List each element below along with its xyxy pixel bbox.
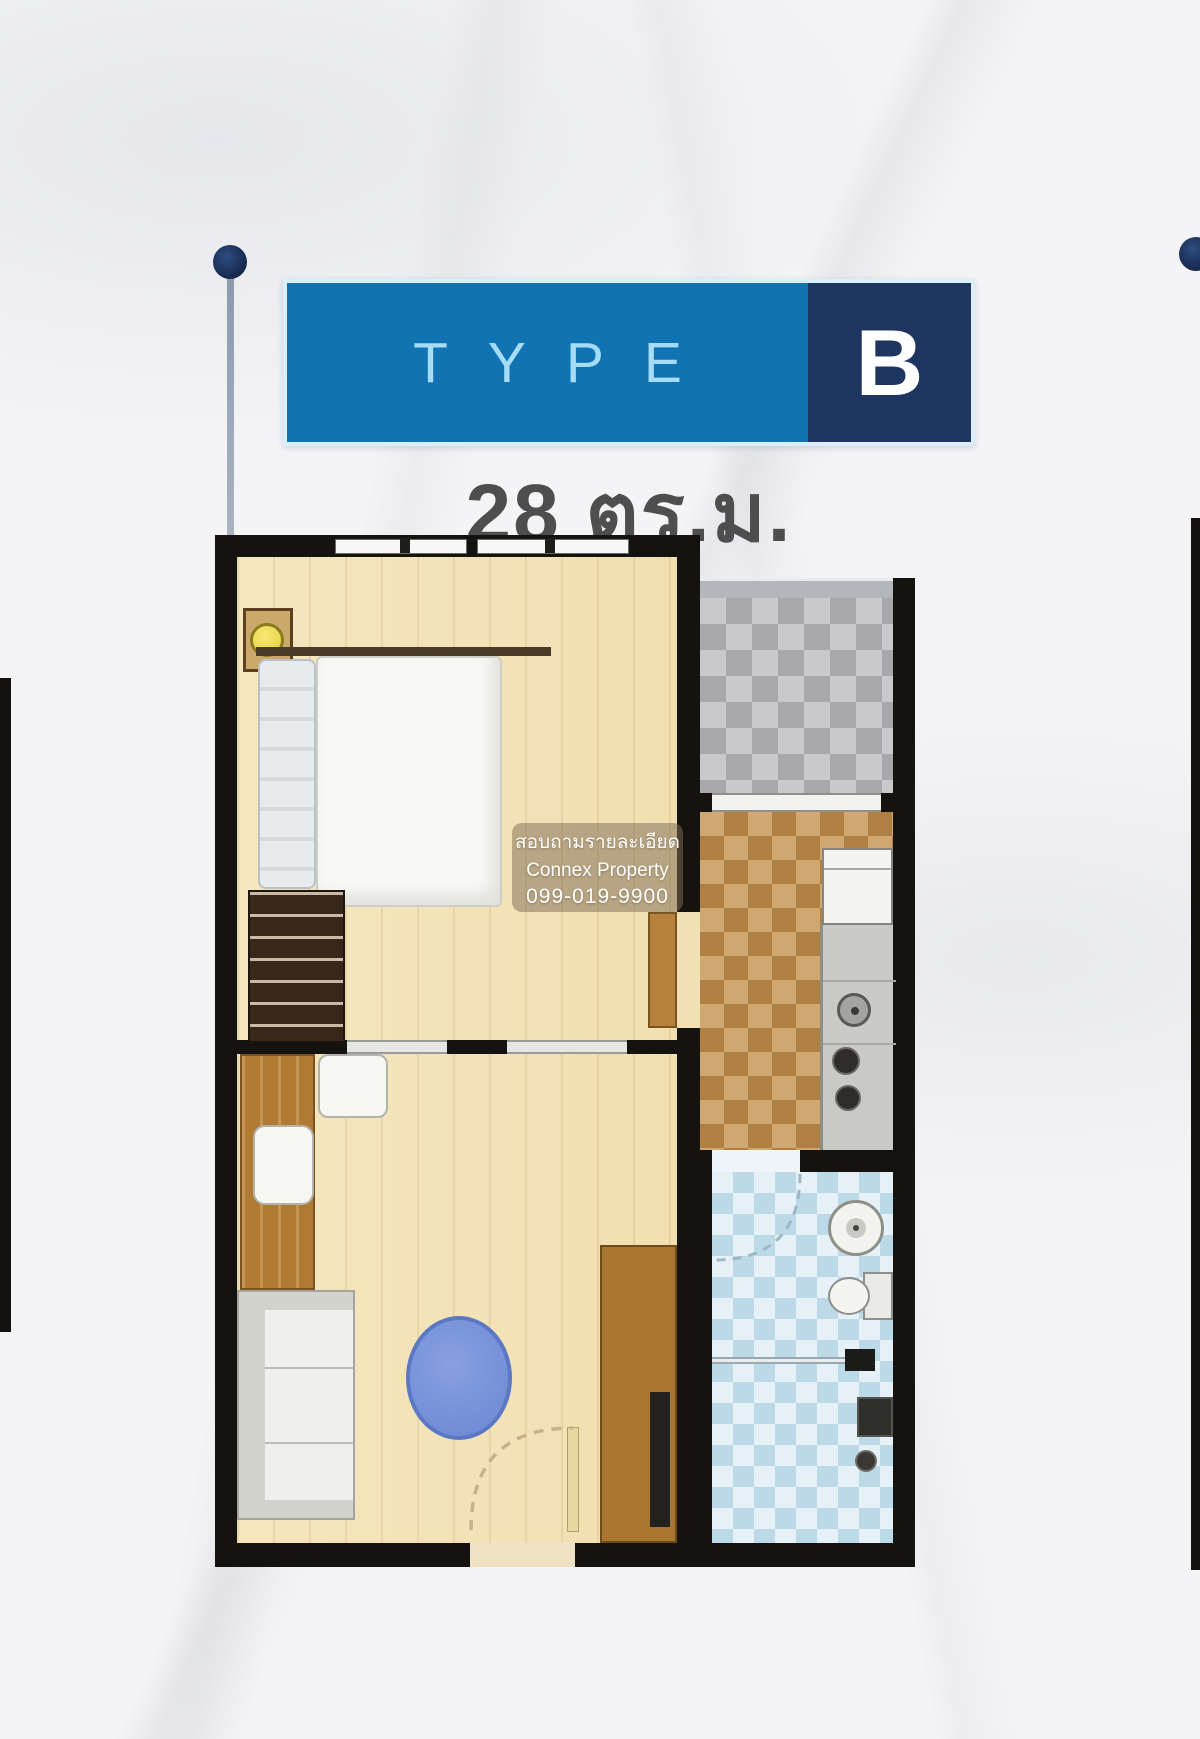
watermark-company: Connex Property (526, 860, 669, 882)
callout-dot (213, 245, 247, 279)
neighbor-plan-right-edge (1191, 518, 1200, 1570)
unit-label: B (856, 309, 924, 417)
type-banner-blue-section: TYPE (287, 283, 808, 442)
entrance-door-swing-arc (471, 1428, 573, 1530)
type-label: TYPE (373, 330, 722, 396)
callout-line (227, 270, 234, 535)
type-banner: TYPE B (283, 279, 975, 446)
watermark: สอบถามรายละเอียด Connex Property 099-019… (512, 823, 683, 912)
neighbor-plan-left-edge (0, 678, 11, 1332)
door-swing-arcs (215, 535, 915, 1567)
watermark-line-thai: สอบถามรายละเอียด (515, 827, 680, 857)
poster-canvas: TYPE B 28 ตร.ม. (0, 0, 1200, 1739)
floor-plan (215, 535, 915, 1567)
watermark-phone: 099-019-9900 (526, 885, 669, 909)
neighbor-callout-dot (1179, 237, 1200, 271)
bathroom-door-swing-arc (714, 1174, 800, 1260)
type-banner-navy-section: B (808, 283, 971, 442)
